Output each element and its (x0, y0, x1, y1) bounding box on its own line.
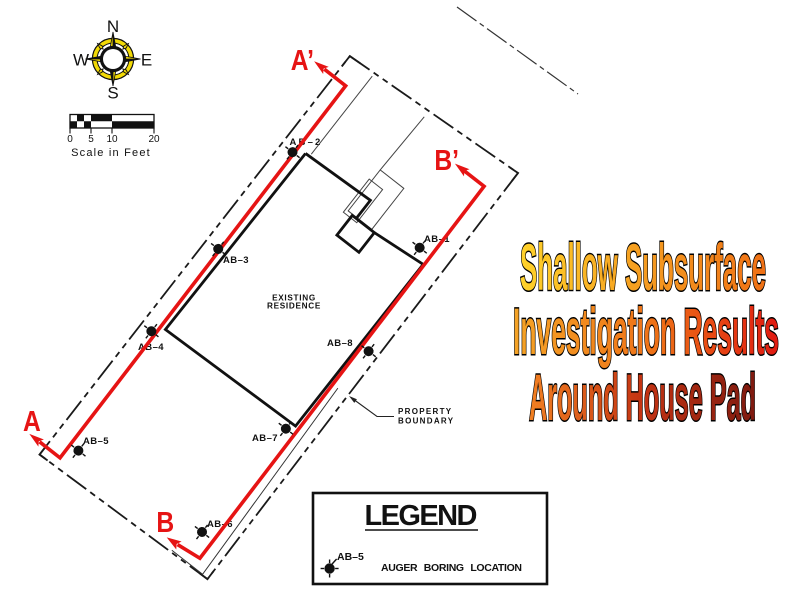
svg-text:S: S (107, 84, 118, 103)
svg-text:E: E (141, 51, 152, 70)
svg-text:A: A (23, 405, 41, 437)
svg-text:AB–5: AB–5 (337, 551, 364, 563)
svg-text:AUGER BORING LOCATION: AUGER BORING LOCATION (381, 562, 523, 574)
svg-text:10: 10 (106, 134, 118, 145)
svg-text:RESIDENCE: RESIDENCE (267, 302, 321, 311)
svg-text:5: 5 (88, 134, 94, 145)
svg-text:AB–5: AB–5 (83, 436, 109, 447)
svg-text:20: 20 (148, 134, 160, 145)
svg-text:W: W (73, 51, 89, 70)
svg-text:Shallow Subsurface: Shallow Subsurface (520, 230, 766, 304)
svg-text:A’: A’ (291, 44, 314, 76)
svg-text:AB–7: AB–7 (252, 433, 278, 444)
svg-text:AB–3: AB–3 (223, 255, 249, 266)
svg-text:LEGEND: LEGEND (365, 500, 478, 532)
svg-text:PROPERTY: PROPERTY (398, 407, 452, 416)
svg-text:Scale in Feet: Scale in Feet (71, 147, 151, 159)
svg-text:B: B (156, 506, 174, 538)
svg-text:0: 0 (67, 134, 73, 145)
svg-text:B’: B’ (434, 144, 459, 176)
svg-text:N: N (107, 17, 119, 36)
svg-text:BOUNDARY: BOUNDARY (398, 417, 454, 426)
svg-text:AB–8: AB–8 (327, 338, 353, 349)
svg-text:Investigation Results: Investigation Results (513, 294, 779, 368)
svg-text:Around House Pad: Around House Pad (529, 360, 756, 434)
